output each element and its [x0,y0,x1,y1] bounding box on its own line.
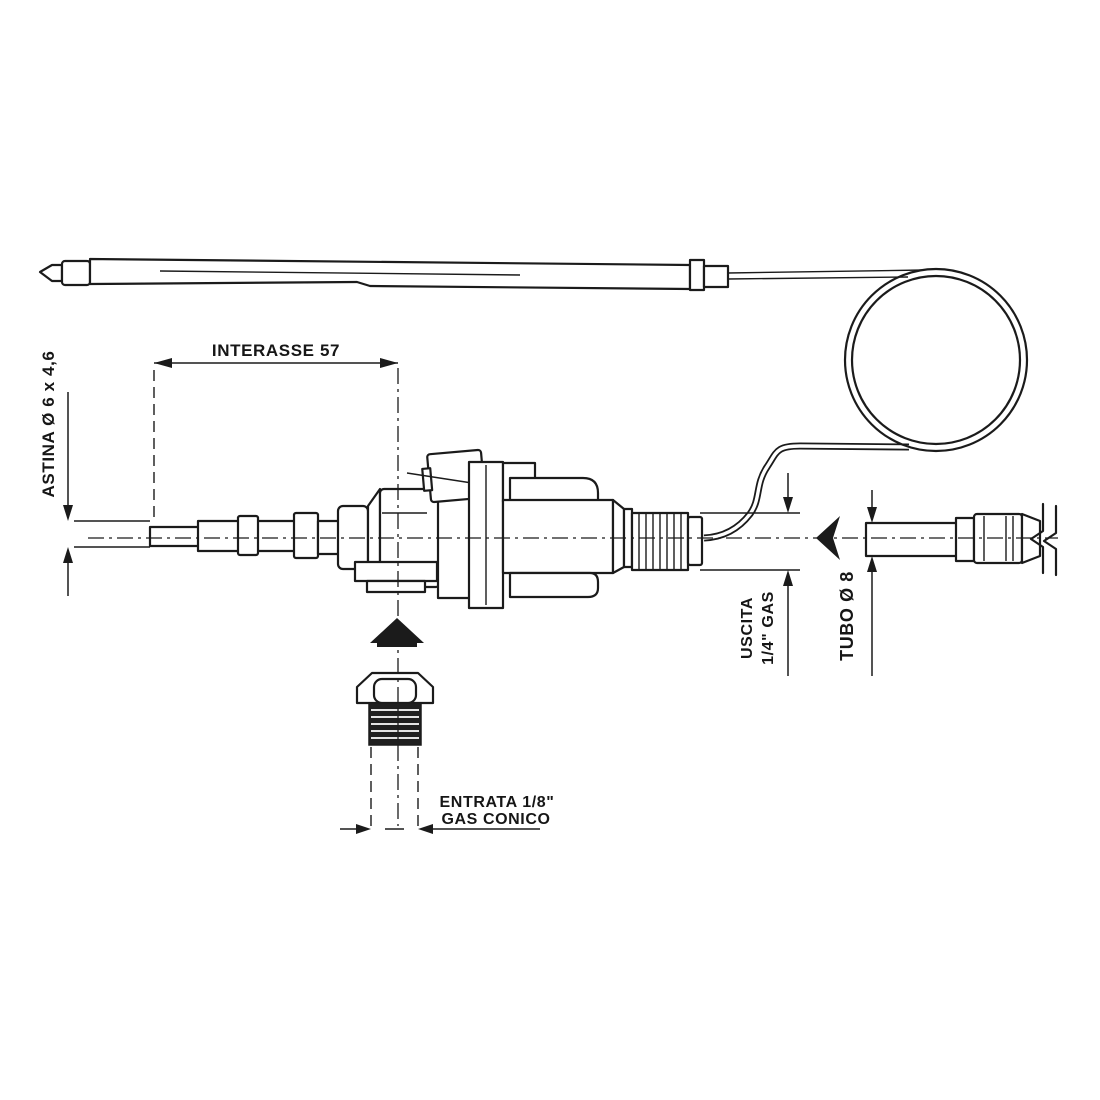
astina-label: ASTINA Ø 6 x 4,6 [39,351,58,498]
inlet-thread-stub [369,703,421,745]
entrata-label-line2: GAS CONICO [441,811,550,828]
tubo-label: TUBO Ø 8 [837,571,857,661]
probe-connector [690,260,704,290]
dim-arrow-down-icon [63,505,73,521]
dimension-tubo: TUBO Ø 8 [837,490,877,676]
bulb-probe [40,259,728,290]
assembly-direction-up-arrow-icon [370,618,424,643]
probe-connector-small [704,266,728,287]
dim-arrow-left-icon [418,824,433,834]
capillary-tube [704,270,924,538]
dimension-interasse: INTERASSE 57 [154,341,398,521]
capillary-coil [845,269,1027,451]
uscita-label-line1: USCITA [739,597,756,659]
dim-arrow-right-icon [356,824,371,834]
valve-right-cylinder [503,500,613,573]
dim-arrow-right-icon [380,358,398,368]
gas-outlet-thread [632,513,702,570]
dim-arrow-up-icon [867,556,877,572]
dimension-astina: ASTINA Ø 6 x 4,6 [39,351,150,596]
interasse-label: INTERASSE 57 [212,341,340,360]
outlet-tube [866,504,1056,575]
dimension-entrata: ENTRATA 1/8" GAS CONICO [340,747,554,834]
valve-diagram: INTERASSE 57 ASTINA Ø 6 x 4,6 USCITA 1/4… [0,0,1100,1100]
uscita-label-line2: 1/4" GAS [760,591,777,665]
valve-body [150,450,702,608]
tube-body [866,523,958,556]
dim-arrow-up-icon [783,570,793,586]
probe-tip [40,265,62,281]
dim-arrow-down-icon [783,497,793,513]
technical-diagram-page: INTERASSE 57 ASTINA Ø 6 x 4,6 USCITA 1/4… [0,0,1100,1100]
inlet-fitting-exploded [357,673,433,745]
dim-arrow-up-icon [63,547,73,563]
entrata-label-line1: ENTRATA 1/8" [440,794,555,811]
dim-arrow-left-icon [154,358,172,368]
inlet-boss [355,562,437,581]
dim-arrow-down-icon [867,507,877,523]
dimension-uscita: USCITA 1/4" GAS [700,473,800,676]
astina-rod [150,527,200,546]
probe-collar [62,261,90,285]
